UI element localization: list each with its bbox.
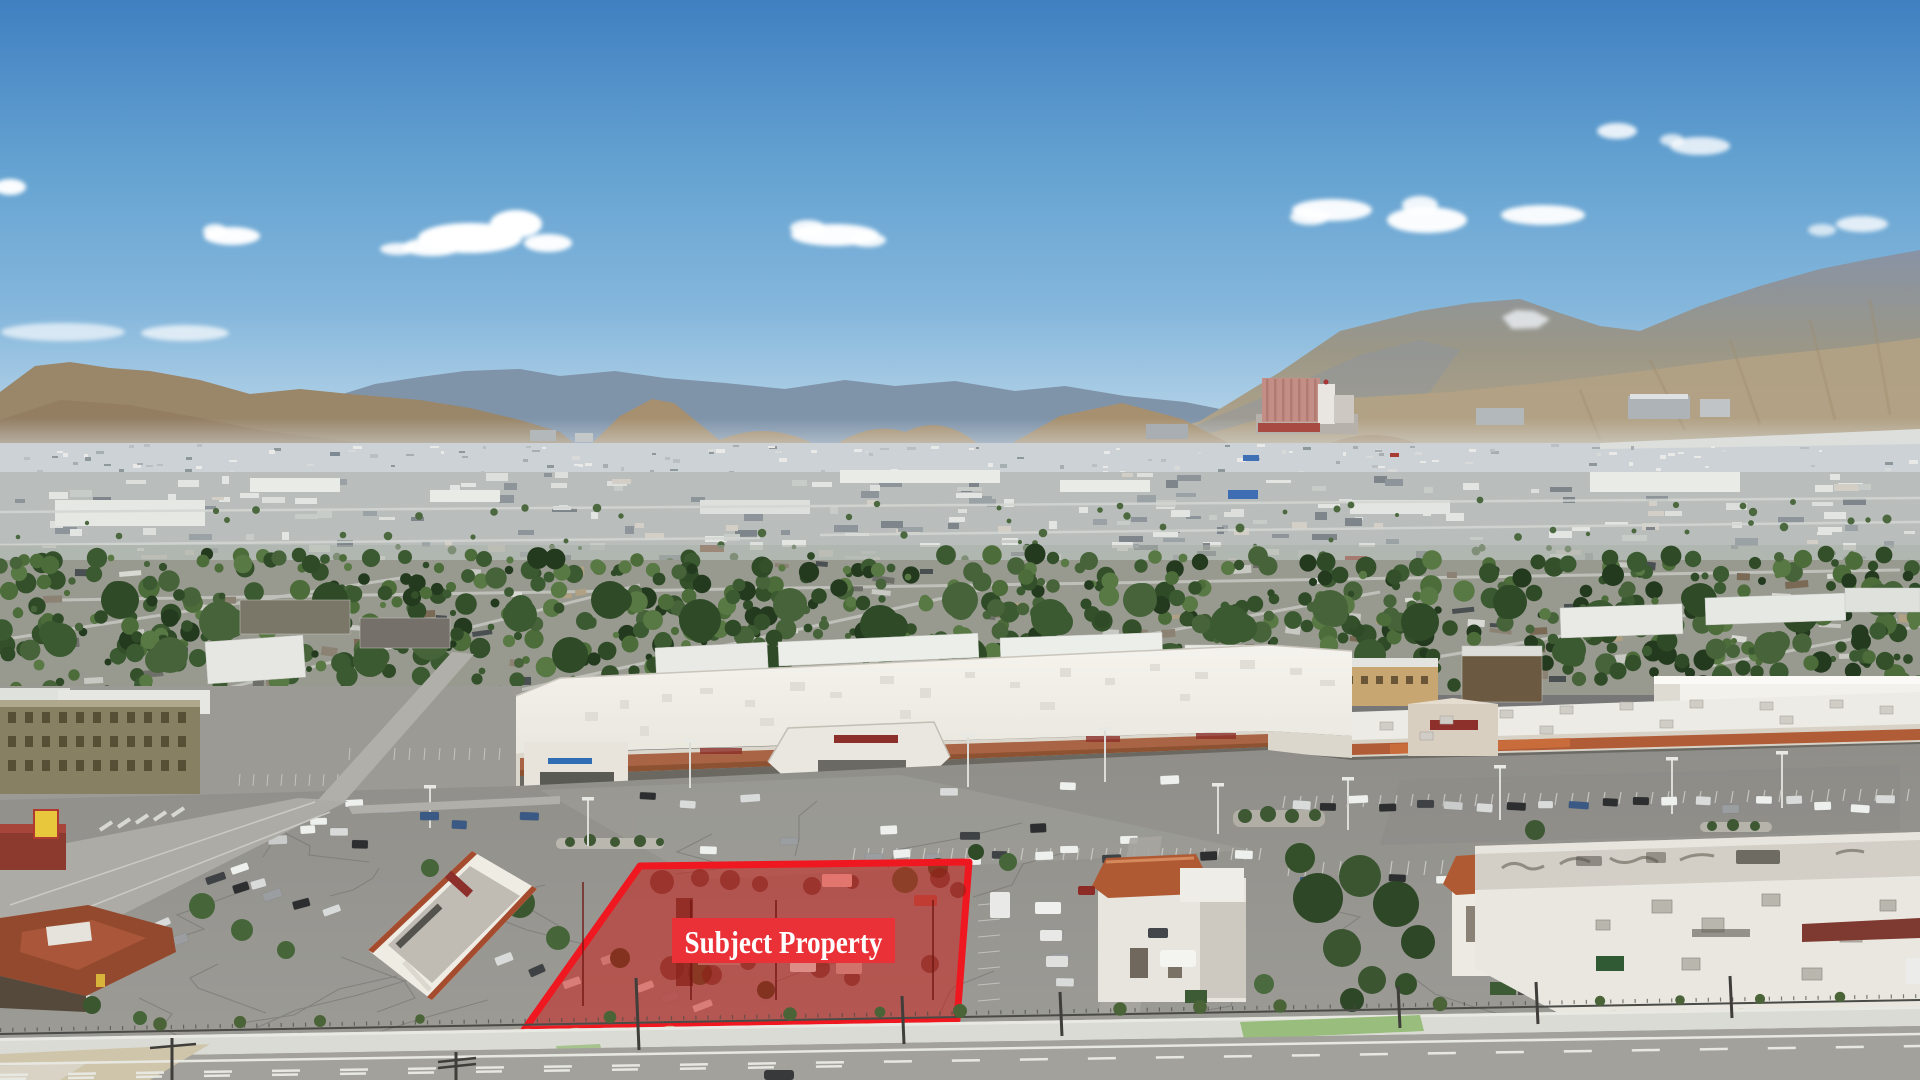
svg-text:Subject Property: Subject Property	[685, 924, 883, 960]
